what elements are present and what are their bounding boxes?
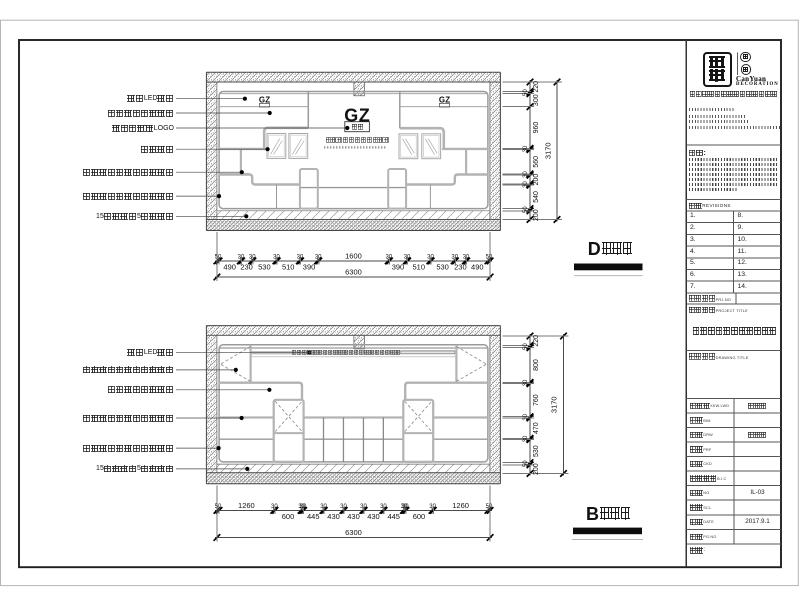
svg-text:3170: 3170: [550, 396, 559, 413]
svg-text:490: 490: [223, 263, 236, 272]
svg-text:1260: 1260: [238, 501, 255, 510]
svg-text:390: 390: [392, 263, 405, 272]
svg-text:1600: 1600: [345, 252, 362, 261]
svg-text:430: 430: [367, 512, 380, 521]
svg-text:390: 390: [303, 263, 316, 272]
svg-text:470: 470: [533, 422, 540, 434]
svg-text:50: 50: [523, 89, 529, 96]
svg-text:50: 50: [215, 504, 222, 510]
svg-text:220: 220: [533, 335, 540, 347]
svg-text:560: 560: [533, 156, 540, 168]
svg-text:300: 300: [533, 94, 540, 106]
svg-text:B: B: [586, 504, 599, 524]
svg-text:510: 510: [413, 263, 426, 272]
svg-text:50: 50: [523, 206, 529, 213]
svg-text:200: 200: [533, 209, 540, 221]
svg-text:50: 50: [523, 343, 529, 350]
svg-text:530: 530: [533, 445, 540, 457]
svg-text:30: 30: [402, 504, 409, 510]
svg-text:30: 30: [523, 171, 529, 178]
svg-text:6300: 6300: [345, 528, 362, 537]
svg-text:30: 30: [523, 181, 529, 188]
svg-text:30: 30: [340, 504, 347, 510]
svg-text:960: 960: [533, 122, 540, 134]
svg-text:30: 30: [429, 504, 436, 510]
svg-text:30: 30: [360, 504, 367, 510]
svg-text:600: 600: [282, 512, 295, 521]
svg-text:1260: 1260: [452, 501, 469, 510]
svg-text:30: 30: [451, 255, 458, 261]
svg-text:30: 30: [385, 255, 392, 261]
svg-text:800: 800: [533, 359, 540, 371]
svg-text:445: 445: [307, 512, 320, 521]
svg-text:30: 30: [523, 379, 529, 386]
svg-text:600: 600: [413, 512, 426, 521]
svg-text:30: 30: [249, 255, 256, 261]
svg-text:30: 30: [523, 413, 529, 420]
svg-text:200: 200: [533, 463, 540, 475]
svg-text:200: 200: [533, 174, 540, 186]
svg-text:430: 430: [347, 512, 360, 521]
svg-text:430: 430: [327, 512, 340, 521]
svg-text:3170: 3170: [544, 142, 553, 159]
svg-text:760: 760: [533, 394, 540, 406]
svg-text:50: 50: [486, 255, 493, 261]
svg-text:220: 220: [533, 81, 540, 93]
svg-text:50: 50: [215, 255, 222, 261]
svg-text:230: 230: [240, 263, 253, 272]
svg-text:30: 30: [271, 504, 278, 510]
svg-text:GZ: GZ: [344, 105, 370, 125]
svg-text:30: 30: [463, 255, 470, 261]
svg-text:30: 30: [427, 255, 434, 261]
svg-text:6300: 6300: [345, 268, 362, 277]
svg-text:530: 530: [436, 263, 449, 272]
svg-text:30: 30: [273, 255, 280, 261]
svg-text:490: 490: [471, 263, 484, 272]
svg-text:50: 50: [486, 504, 493, 510]
svg-text:50: 50: [523, 460, 529, 467]
svg-text:510: 510: [282, 263, 295, 272]
svg-text:30: 30: [523, 435, 529, 442]
svg-text:30: 30: [300, 504, 307, 510]
svg-text:230: 230: [454, 263, 467, 272]
svg-text:530: 530: [258, 263, 271, 272]
svg-text:30: 30: [404, 255, 411, 261]
svg-text:D: D: [588, 239, 601, 259]
svg-text:30: 30: [238, 255, 245, 261]
svg-text:30: 30: [315, 255, 322, 261]
svg-text:445: 445: [387, 512, 400, 521]
svg-text:30: 30: [320, 504, 327, 510]
svg-text:30: 30: [523, 145, 529, 152]
svg-text:30: 30: [380, 504, 387, 510]
svg-text:540: 540: [533, 191, 540, 203]
svg-text:30: 30: [297, 255, 304, 261]
